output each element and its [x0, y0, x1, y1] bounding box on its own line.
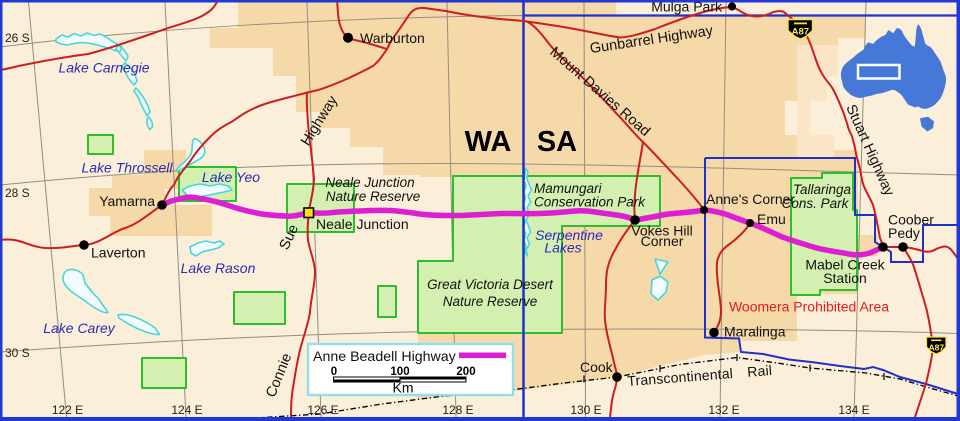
svg-text:Lake Throssell: Lake Throssell [81, 160, 173, 176]
svg-text:200: 200 [456, 366, 475, 378]
svg-text:Neale Junction: Neale Junction [316, 216, 409, 232]
svg-text:Emu: Emu [757, 211, 786, 227]
svg-text:Corner: Corner [641, 233, 684, 249]
svg-text:124 E: 124 E [171, 403, 202, 417]
svg-text:Neale Junction: Neale Junction [325, 175, 414, 190]
svg-text:SA: SA [537, 126, 577, 158]
svg-text:0: 0 [331, 366, 337, 378]
svg-text:134 E: 134 E [838, 403, 869, 417]
svg-text:122 E: 122 E [52, 403, 83, 417]
svg-text:Pedy: Pedy [888, 225, 920, 241]
svg-text:Yamarna: Yamarna [99, 193, 155, 209]
svg-text:Anne's Corner: Anne's Corner [706, 191, 795, 207]
svg-text:100: 100 [390, 366, 409, 378]
svg-text:Warburton: Warburton [360, 30, 425, 46]
svg-text:Lake Yeo: Lake Yeo [202, 169, 260, 185]
svg-text:A87: A87 [929, 343, 945, 353]
svg-text:Tallaringa: Tallaringa [793, 182, 852, 197]
svg-text:Lake Carnegie: Lake Carnegie [58, 60, 149, 76]
svg-text:Laverton: Laverton [91, 245, 145, 261]
svg-text:WA: WA [465, 126, 512, 158]
svg-text:Lake Rason: Lake Rason [181, 260, 256, 276]
svg-text:Nature Reserve: Nature Reserve [443, 294, 538, 309]
svg-text:128 E: 128 E [442, 403, 473, 417]
svg-text:132 E: 132 E [708, 403, 739, 417]
svg-text:Conservation Park: Conservation Park [534, 195, 646, 210]
svg-text:Nature Reserve: Nature Reserve [326, 189, 421, 204]
svg-text:30 S: 30 S [5, 346, 30, 360]
svg-text:26 S: 26 S [5, 31, 30, 45]
svg-text:Lake Carey: Lake Carey [43, 320, 116, 336]
svg-text:130 E: 130 E [570, 403, 601, 417]
svg-text:126 E: 126 E [307, 403, 338, 417]
svg-text:Cook: Cook [580, 359, 614, 375]
svg-text:Lakes: Lakes [544, 240, 581, 256]
svg-text:Maralinga: Maralinga [724, 324, 786, 340]
svg-text:Great Victoria Desert: Great Victoria Desert [427, 277, 554, 292]
svg-text:28 S: 28 S [5, 186, 30, 200]
svg-text:Km: Km [393, 380, 414, 396]
svg-text:Anne Beadell Highway: Anne Beadell Highway [313, 349, 457, 365]
svg-text:Woomera Prohibited Area: Woomera Prohibited Area [729, 299, 889, 315]
svg-text:A87: A87 [792, 27, 809, 38]
svg-text:Station: Station [823, 270, 867, 286]
